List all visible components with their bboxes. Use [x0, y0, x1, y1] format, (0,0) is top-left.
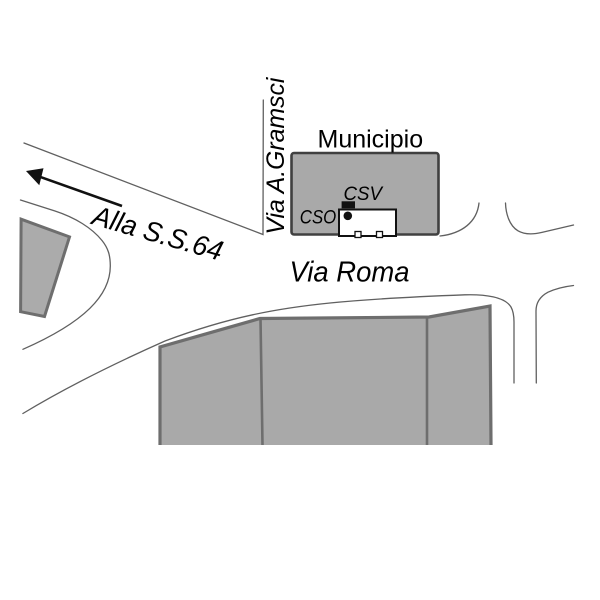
svg-text:Alla S.S.64: Alla S.S.64	[87, 199, 226, 266]
svg-text:CSO: CSO	[300, 207, 337, 228]
svg-text:Via Roma: Via Roma	[290, 257, 410, 289]
svg-text:Municipio: Municipio	[318, 126, 424, 154]
svg-text:Via A.Gramsci: Via A.Gramsci	[262, 76, 290, 234]
svg-text:CSV: CSV	[344, 184, 385, 205]
